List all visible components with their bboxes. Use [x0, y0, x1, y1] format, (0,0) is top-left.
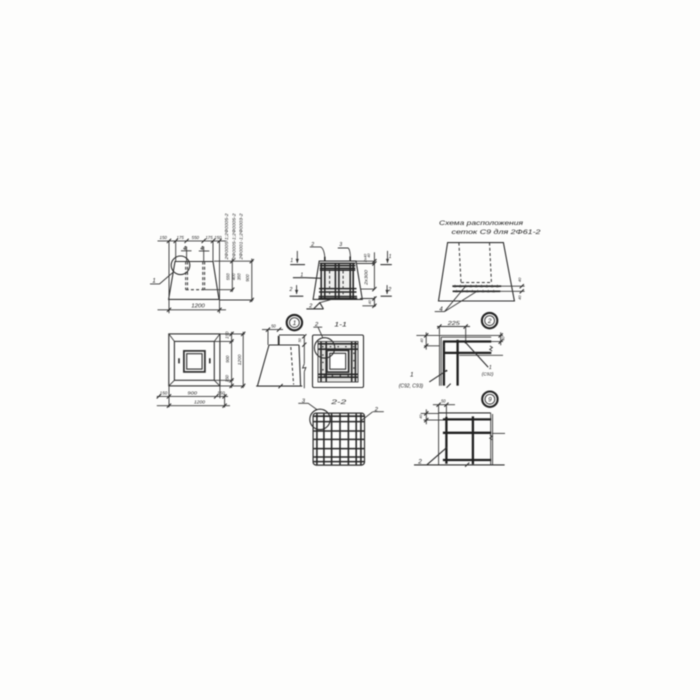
svg-text:1200: 1200: [194, 399, 205, 405]
svg-text:2: 2: [417, 458, 422, 465]
svg-text:175: 175: [205, 235, 213, 240]
svg-text:1: 1: [300, 272, 303, 278]
svg-text:1200: 1200: [237, 354, 243, 365]
svg-text:50: 50: [298, 337, 302, 342]
svg-text:40: 40: [420, 338, 424, 343]
svg-text:2Ф0005-1;2Ф0005-2: 2Ф0005-1;2Ф0005-2: [231, 213, 236, 261]
svg-text:150: 150: [214, 235, 222, 240]
svg-text:150: 150: [160, 391, 168, 396]
svg-text:550: 550: [226, 273, 231, 281]
svg-text:Схема расположения: Схема расположения: [439, 220, 524, 227]
svg-text:40: 40: [419, 414, 423, 419]
svg-text:2: 2: [387, 287, 391, 293]
svg-text:1: 1: [293, 320, 297, 327]
svg-text:1: 1: [290, 258, 293, 264]
svg-text:1: 1: [410, 372, 414, 379]
svg-text:(С92): (С92): [482, 372, 494, 377]
svg-text:1-1: 1-1: [334, 321, 347, 328]
svg-text:2-2: 2-2: [330, 399, 348, 406]
svg-text:9: 9: [488, 397, 492, 404]
svg-text:900: 900: [225, 355, 230, 363]
svg-text:4: 4: [200, 246, 204, 252]
svg-text:2: 2: [289, 287, 293, 293]
svg-text:50: 50: [271, 324, 276, 329]
svg-text:550: 550: [192, 235, 200, 240]
svg-text:40: 40: [367, 253, 371, 258]
svg-text:150: 150: [224, 331, 229, 339]
svg-text:2Ф0001-1;2Ф0003-2: 2Ф0001-1;2Ф0003-2: [239, 213, 244, 261]
svg-text:900: 900: [245, 274, 250, 282]
svg-text:(С92, С93): (С92, С93): [399, 383, 424, 389]
svg-text:175: 175: [177, 235, 185, 240]
svg-text:400: 400: [231, 273, 236, 281]
svg-text:150: 150: [160, 235, 168, 240]
svg-text:40: 40: [502, 336, 506, 341]
svg-text:150: 150: [224, 374, 229, 382]
svg-text:900: 900: [188, 391, 198, 396]
svg-text:40: 40: [517, 295, 522, 300]
svg-text:1: 1: [389, 254, 392, 260]
svg-text:350: 350: [237, 273, 242, 281]
svg-text:сеток С9 для 2Ф61-2: сеток С9 для 2Ф61-2: [452, 229, 542, 236]
svg-text:40: 40: [368, 299, 372, 304]
svg-text:4: 4: [182, 246, 186, 252]
svg-text:1200: 1200: [191, 304, 205, 310]
svg-text:2Ф0005-1;2Ф0005-2: 2Ф0005-1;2Ф0005-2: [224, 213, 229, 261]
svg-text:150: 150: [217, 391, 225, 396]
svg-text:2x40: 2x40: [363, 253, 367, 263]
svg-text:1: 1: [152, 278, 155, 284]
svg-text:2: 2: [487, 318, 492, 325]
svg-text:1: 1: [489, 365, 492, 371]
svg-text:3: 3: [339, 242, 342, 248]
svg-text:2: 2: [374, 407, 379, 413]
svg-text:40: 40: [517, 277, 522, 282]
svg-text:2x300: 2x300: [364, 269, 369, 286]
svg-text:50: 50: [441, 398, 446, 403]
